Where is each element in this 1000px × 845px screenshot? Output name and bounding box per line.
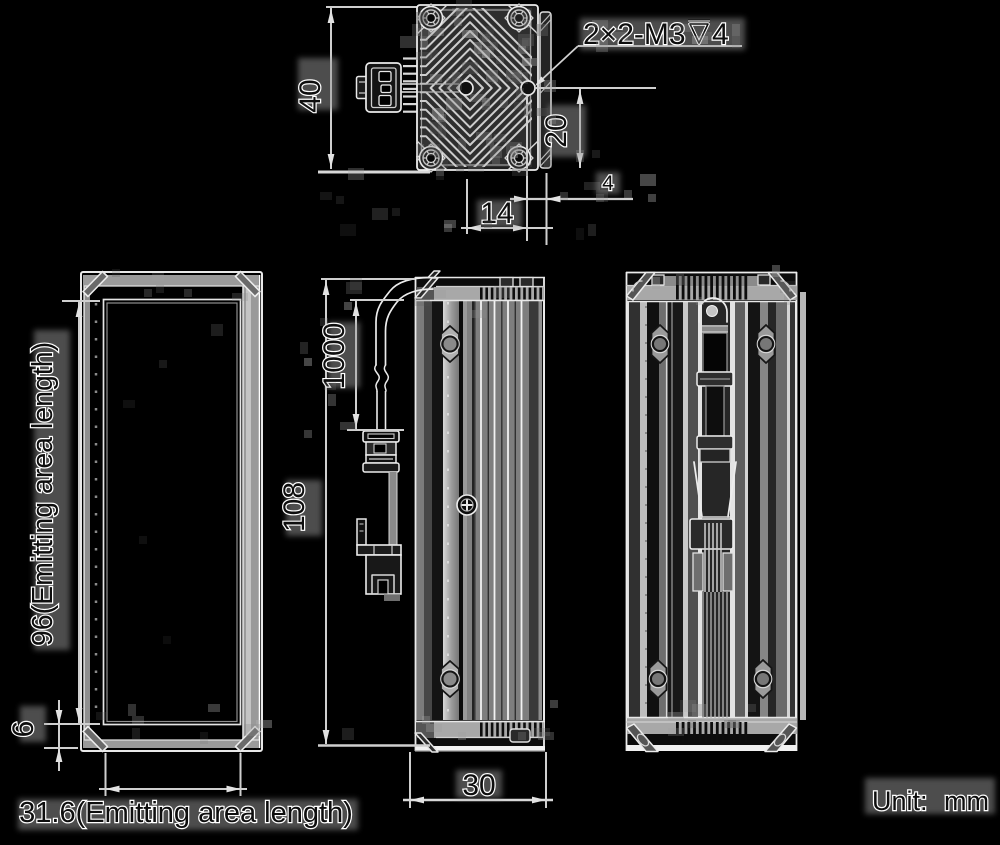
- svg-text:20: 20: [540, 114, 573, 147]
- svg-text:Unit:: Unit:: [872, 786, 928, 816]
- svg-text:1000: 1000: [318, 323, 351, 390]
- svg-text:31.6(Emitting area length): 31.6(Emitting area length): [19, 797, 353, 829]
- svg-text:mm: mm: [944, 786, 989, 816]
- svg-text:96(Emitting area length): 96(Emitting area length): [27, 342, 59, 646]
- svg-text:40: 40: [294, 79, 327, 112]
- svg-text:30: 30: [462, 769, 495, 802]
- svg-text:108: 108: [278, 482, 311, 532]
- svg-text:6: 6: [7, 721, 40, 738]
- svg-text:4: 4: [712, 18, 729, 51]
